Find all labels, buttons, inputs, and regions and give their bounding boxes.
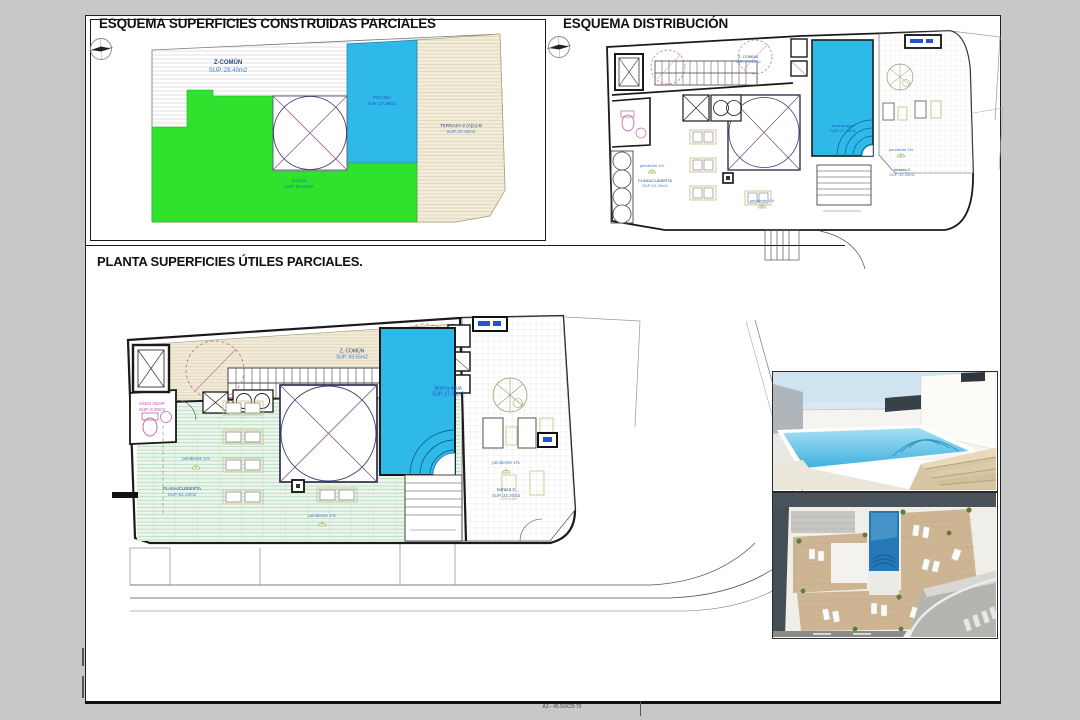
neighbour-outline — [565, 317, 640, 427]
upper-street — [773, 493, 996, 507]
drawing-sheet-page: ESQUEMA SUPERFICIES CONSTRUIDAS PARCIALE… — [0, 0, 1080, 720]
aerial-render-image — [772, 492, 998, 639]
plan-label: pendiente 1% — [750, 199, 774, 203]
facade-mark — [112, 492, 138, 498]
plan-label: pendiente 1% — [889, 148, 913, 152]
elevator-shaft — [133, 345, 169, 392]
zone-sup-label: SUP.:29.40m2 — [209, 68, 247, 74]
plan-label: SUP.:51.20m2 — [168, 493, 197, 498]
zone-sup-label: SUP.:59.35m2 — [285, 185, 314, 190]
zone-sup-label: SUP.:27.38m2 — [368, 102, 397, 107]
distribucion-plan — [595, 25, 1005, 275]
north-compass-icon — [546, 34, 572, 60]
skylight-symbol — [280, 385, 377, 482]
drain-icon — [501, 467, 511, 475]
paper-format-label: A3 - 45.50X29.70 — [543, 704, 582, 710]
zone-label: TERRAZA-2 (A)(c)-B — [440, 124, 482, 129]
wall-vent — [961, 372, 985, 382]
panel-utiles-title: PLANTA SUPERFICIES ÚTILES PARCIALES. — [97, 254, 363, 269]
plan-label: ASEO ADAP. — [139, 402, 165, 407]
zone-sup-label: SUP.:37.40m2 — [447, 130, 476, 135]
zone-label: terraza — [292, 179, 306, 184]
zone-label: PISCINA — [373, 96, 391, 101]
pool-render-image — [772, 371, 998, 492]
drain-icon — [317, 520, 327, 528]
plan-label: pendiente 1% — [182, 457, 210, 462]
lower-stair-court — [405, 475, 462, 541]
plan-label: SUP.:32.20m2 — [492, 494, 521, 499]
installation-shaft — [791, 39, 807, 57]
elevator-shaft — [615, 54, 643, 90]
construidas-schematic — [90, 18, 546, 241]
plan-label: pendiente 1% — [492, 461, 520, 466]
neighbour-outline — [973, 108, 1003, 170]
street-kerb — [130, 543, 816, 611]
plan-label: SUP.:29.40m2 — [735, 60, 761, 64]
bbq-counter — [683, 95, 742, 121]
skylight-symbol — [273, 96, 347, 170]
left-wall-block — [773, 384, 803, 434]
pool-platform — [869, 571, 899, 595]
sheet-edge-mark — [82, 648, 84, 666]
drain-icon — [191, 463, 201, 471]
plan-label: SUP.:3.20m2 — [139, 408, 165, 413]
bathroom — [612, 98, 650, 147]
plan-label: pendiente 1% — [308, 514, 336, 519]
plan-label: terraza 2 — [497, 488, 515, 493]
plan-label: SUP.:27.38m2 — [830, 129, 856, 133]
plan-label: SUP.:27.38m2 — [432, 393, 464, 398]
plan-label: SUP.:69.55m2 — [336, 356, 368, 361]
utiles-plan — [110, 305, 830, 635]
zone-label: Z-COMÚN — [214, 60, 242, 66]
plan-label: SUP.:32.20m2 — [889, 173, 915, 177]
road-asphalt — [773, 631, 907, 637]
footer-tick — [640, 701, 641, 716]
pool — [380, 328, 455, 475]
plan-label: pendiente 1% — [640, 164, 664, 168]
roof-structure — [831, 543, 867, 583]
aerial-pool — [869, 511, 899, 571]
street-entry — [765, 230, 865, 269]
plan-label: SUP.:51.20m2 — [642, 184, 668, 188]
gravel-roof — [791, 511, 855, 533]
sheet-edge-mark — [82, 676, 84, 698]
pool — [812, 40, 873, 156]
plan-label: PLANA/CUBIERTA — [163, 487, 201, 492]
